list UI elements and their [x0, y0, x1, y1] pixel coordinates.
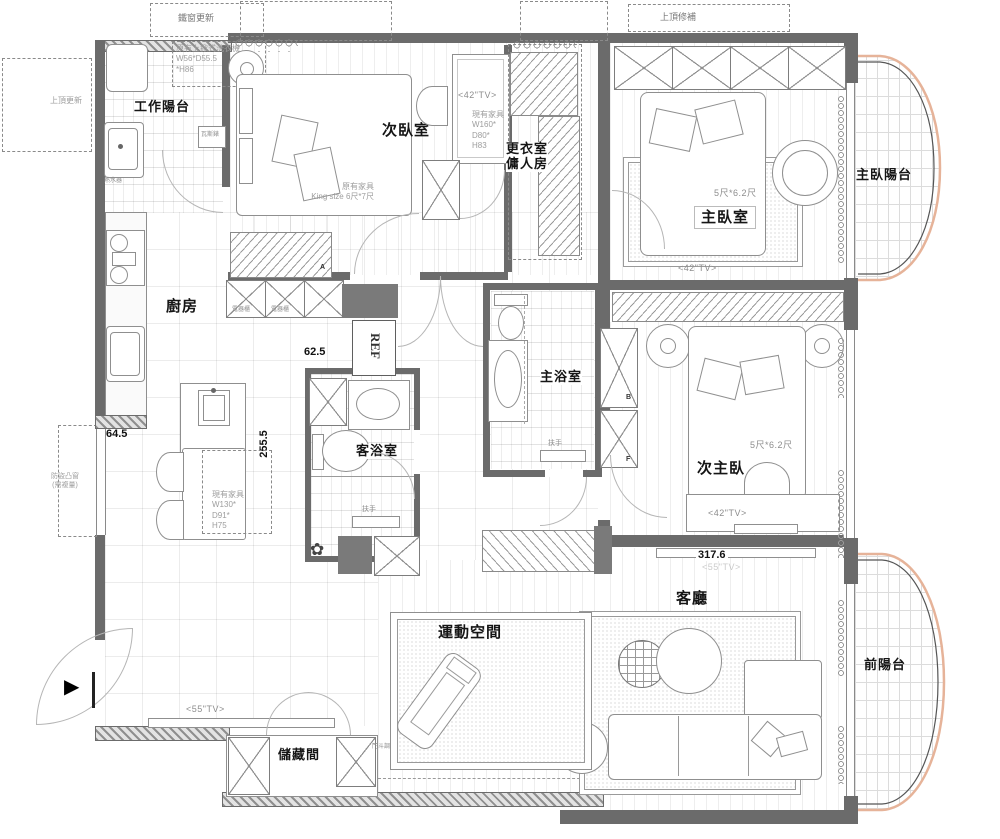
wall-left-lower [95, 535, 105, 640]
master-bath-door-gap [545, 470, 583, 477]
note-bay-window: 防盜凸窗 (需複量) [30, 472, 100, 490]
wardrobe-x-master-1 [614, 46, 674, 90]
note-box-window-1 [240, 1, 392, 41]
cabinet-x-bed2 [422, 160, 460, 220]
room-label-storage: 儲藏間 [278, 748, 320, 763]
grab-bar-guest [352, 516, 400, 528]
note-box-ceiling-repair [628, 4, 790, 32]
tv-label-second: <42"TV> [708, 508, 747, 518]
curtain-squiggle [836, 96, 846, 264]
corridor-dashed-line [378, 778, 600, 780]
note-handrail-master: 扶手 [548, 440, 562, 448]
burner [110, 266, 128, 284]
wall-right-c [844, 538, 858, 584]
room-label-work-balcony: 工作陽台 [134, 100, 190, 115]
bed-secondary-headboard-2 [239, 138, 253, 184]
closet-rack-top [510, 52, 578, 116]
entry-arrow-icon: ▶ [64, 674, 79, 699]
curtain-squiggle [836, 470, 846, 558]
armchair-master-seat [782, 150, 828, 196]
wardrobe-x-second-1 [600, 328, 638, 408]
room-label-second-master: 次主臥 [694, 460, 748, 477]
wall-right-d [844, 796, 858, 824]
wall-center [598, 33, 610, 318]
label-ref: REF [367, 333, 383, 359]
note-box-window-2 [520, 1, 608, 41]
wall-living-bottom [560, 810, 858, 824]
island-faucet [211, 388, 216, 393]
tv-cabinet-second-shelf [734, 524, 798, 534]
storage-cabinet-left [228, 737, 270, 795]
island-sink-basin [203, 395, 225, 421]
entry-door-leaf [92, 672, 95, 708]
note-ceiling-repair: 上頂修補 [660, 12, 696, 24]
closet-hatch-shared [612, 292, 844, 322]
room-label-kitchen: 廚房 [166, 298, 198, 315]
dining-chair [156, 452, 184, 492]
toilet-tank-master [494, 294, 528, 306]
bed-size-second: 5尺*6.2尺 [750, 438, 793, 451]
nightstand-top [660, 338, 676, 354]
washing-machine [106, 44, 148, 92]
wall-dining-bottom [95, 726, 230, 741]
sofa-divider [678, 716, 679, 776]
bath-dashed-line [524, 296, 526, 424]
wardrobe-x-master-4 [788, 46, 846, 90]
plant-icon: ✿ [310, 540, 324, 560]
room-label-living: 客廳 [676, 590, 708, 607]
wardrobe-x-master-2 [672, 46, 732, 90]
storage-cabinet-right [336, 737, 376, 787]
burner [110, 234, 128, 252]
note-ceiling-update: 上頂更新 [50, 96, 82, 106]
toilet-bowl-master [498, 306, 524, 340]
dining-chair [156, 500, 184, 540]
guest-bath-door-gap [414, 430, 420, 474]
marker-a: A [320, 264, 325, 271]
room-label-master-bedroom: 主臥室 [694, 206, 756, 229]
cabinet-x-guest-bath [309, 378, 347, 426]
appliance-cabinet-3 [304, 280, 344, 318]
wardrobe-x-master-3 [730, 46, 790, 90]
note-iron-window: 鐵窗更新 [178, 13, 214, 25]
note-wardrobe-160: 現有家具 W160* D80* H83 [472, 110, 504, 152]
armchair-halfround [416, 86, 448, 126]
bed-secondary-headboard-1 [239, 88, 253, 134]
note-gas-meter: 瓦斯錶 [201, 132, 219, 139]
note-dining-set: 現有家具 W130* D91* H75 [212, 490, 244, 532]
dim-62-5: 62.5 [304, 346, 325, 358]
note-king-bed: 原有家具 King size 6尺*7尺 [288, 182, 374, 203]
window-master-balcony [846, 83, 855, 278]
wall-block-hall-right [594, 526, 612, 574]
bed-size-master: 5尺*6.2尺 [714, 186, 757, 199]
sofa-chaise [744, 660, 822, 720]
window-second-master [846, 330, 855, 538]
wall-master-south [610, 280, 844, 290]
label-appliance-cabinet-2: 電器櫃 [271, 307, 289, 314]
wall-right-b [844, 278, 858, 330]
shoe-cabinet [482, 530, 596, 572]
curtain-squiggle [836, 726, 846, 784]
dim-64-5: 64.5 [106, 428, 127, 440]
floor-plan: 鐵窗更新 上頂修補 上頂更新 原有上掀式洗衣機 W56*D55.5 *H86 防… [0, 0, 1000, 839]
laundry-sink-basin [108, 128, 138, 170]
tv-label-bed2: <42"TV> [458, 90, 497, 100]
closet-rack-side [538, 116, 580, 256]
room-label-exercise: 運動空間 [438, 624, 502, 641]
tv-shelf-living [656, 548, 816, 558]
wall-left-upper [95, 40, 105, 425]
room-label-front-balcony: 前陽台 [864, 658, 906, 673]
basin-master [494, 350, 522, 408]
wall-block-kitchen [342, 284, 398, 318]
grab-bar-master [540, 450, 586, 462]
curtain-squiggle [836, 338, 846, 398]
window-living [846, 584, 855, 796]
tv-label-dining: <55"TV> [186, 704, 225, 714]
room-label-master-balcony: 主臥陽台 [856, 168, 912, 183]
nightstand-top [814, 338, 830, 354]
front-balcony-bay [850, 538, 950, 828]
sofa-divider [748, 716, 749, 776]
basin-guest [356, 388, 400, 420]
wall-block-hall-left [338, 536, 372, 574]
room-label-closet-maid: 更衣室 傭人房 [506, 142, 548, 172]
kitchen-sink-basin [110, 332, 140, 376]
wall-right-a [844, 33, 858, 83]
laundry-sink-drain [118, 144, 123, 149]
room-label-master-bath: 主浴室 [540, 370, 582, 385]
room-label-secondary-bedroom: 次臥室 [382, 122, 430, 139]
dim-317-6: 317.6 [696, 549, 728, 561]
wall-secondmaster-south [610, 535, 844, 547]
cabinet-x-hall [374, 536, 420, 576]
coffee-table [656, 628, 722, 694]
tv-label-living: <55"TV> [702, 562, 741, 572]
tv-label-master: <42"TV> [678, 263, 717, 273]
grill [112, 252, 136, 266]
marker-b: B [626, 394, 631, 401]
wall-top-right [606, 33, 846, 43]
note-water-heater: 熱水器 [104, 178, 122, 185]
counter-end-cap [95, 415, 147, 429]
pillow [739, 355, 784, 395]
note-handrail-guest: 扶手 [362, 506, 376, 514]
curtain-squiggle [836, 600, 846, 676]
label-appliance-cabinet-1: 電器櫃 [232, 307, 250, 314]
closet-hatch-bed2 [230, 232, 332, 278]
